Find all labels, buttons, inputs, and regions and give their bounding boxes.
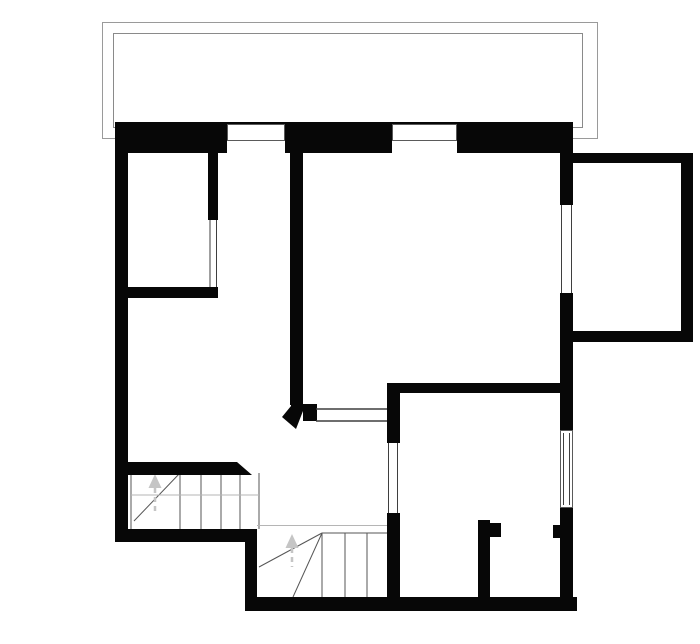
- lower-right-room-top-wall: [387, 383, 573, 393]
- passage-left-stub: [303, 404, 317, 421]
- plan-background: [0, 0, 700, 644]
- top-exterior-wall: [115, 122, 573, 153]
- closet-door-jamb-left: [490, 523, 501, 537]
- extension-top-wall: [573, 153, 693, 163]
- stair-hall-wall-chamfered: [122, 462, 252, 475]
- floor-plan-canvas: [0, 0, 700, 644]
- top-window-b-cut: [392, 124, 457, 153]
- extension-bottom-wall: [560, 331, 693, 342]
- top-window-a-cut: [227, 124, 285, 153]
- right-window-cut: [560, 430, 573, 508]
- floor-plan: [0, 0, 700, 644]
- left-room-bottom-wall: [122, 287, 218, 298]
- left-exterior-wall: [115, 122, 128, 542]
- closet-partition-wall: [478, 520, 490, 597]
- bottom-exterior-wall: [245, 597, 577, 611]
- closet-door-jamb-right: [553, 525, 562, 538]
- central-partition-wall: [290, 153, 303, 405]
- bottom-left-exterior-wall: [115, 529, 257, 542]
- extension-right-wall: [681, 153, 693, 342]
